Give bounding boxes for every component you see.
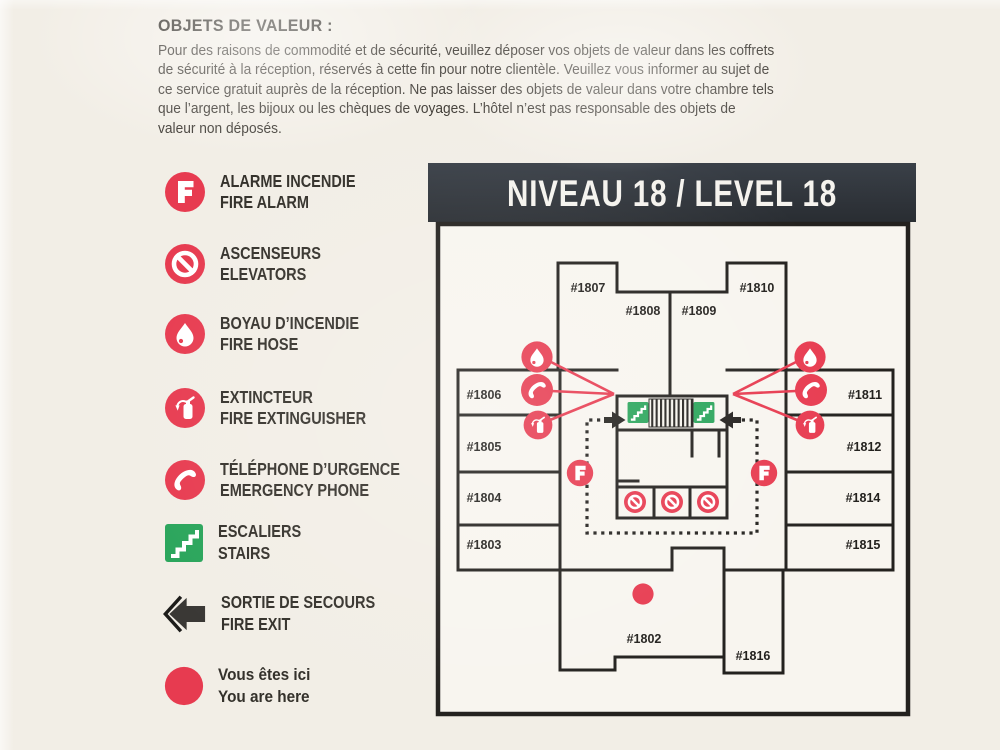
stairs-icon [694, 402, 715, 423]
legend-item-fire-alarm: ALARME INCENDIE FIRE ALARM [163, 170, 383, 214]
no-elevator-icon [661, 491, 683, 513]
legend-item-stairs: ESCALIERS STAIRS [163, 521, 318, 564]
map-title: NIVEAU 18 / LEVEL 18 [507, 173, 837, 214]
room-label-1805: #1805 [467, 440, 502, 454]
room-label-1807: #1807 [571, 281, 606, 295]
legend-label-en: EMERGENCY PHONE [220, 480, 400, 502]
you-are-here-icon [163, 665, 205, 707]
legend-label-fr: SORTIE DE SECOURS [221, 592, 375, 614]
legend-label-fr: BOYAU D’INCENDIE [220, 313, 359, 335]
legend-label-fr: Vous êtes ici [218, 664, 310, 686]
room-label-1808: #1808 [626, 304, 661, 318]
legend-label: Vous êtes ici You are here [218, 664, 321, 707]
emergency-phone-icon [521, 374, 553, 406]
room-label-1816: #1816 [736, 649, 771, 663]
legend-label: SORTIE DE SECOURS FIRE EXIT [221, 592, 407, 635]
room-label-1804: #1804 [467, 491, 502, 505]
plan-border [438, 224, 908, 714]
notice-line: que l’argent, les bijoux ou les chèques … [158, 99, 774, 118]
no-elevator-icon [624, 491, 646, 513]
you-are-here-dot [632, 583, 653, 604]
fire-alarm-icon [163, 170, 207, 214]
fire-extinguisher-icon [524, 411, 553, 440]
room-label-1802: #1802 [627, 632, 662, 646]
notice-line: ce service gratuit auprès de la réceptio… [158, 80, 774, 99]
fire-exit-arrow-icon [163, 595, 208, 633]
legend-label-fr: ASCENSEURS [220, 243, 321, 265]
legend-label-en: FIRE EXTINGUISHER [220, 408, 366, 430]
legend-label-en: STAIRS [218, 543, 301, 565]
no-elevator-icon [697, 491, 719, 513]
legend-label: ALARME INCENDIE FIRE ALARM [220, 171, 383, 214]
legend-label: ASCENSEURS ELEVATORS [220, 243, 342, 286]
room-label-1815: #1815 [846, 538, 881, 552]
legend-label-en: FIRE HOSE [220, 334, 359, 356]
floor-plan: NIVEAU 18 / LEVEL 18 [424, 160, 920, 720]
fire-extinguisher-icon [163, 386, 207, 430]
legend-item-you-are-here: Vous êtes ici You are here [163, 664, 321, 707]
room-label-1812: #1812 [847, 440, 882, 454]
legend-label-en: FIRE ALARM [220, 192, 356, 214]
notice-line: valeur non déposés. [158, 119, 774, 138]
no-elevator-icon [163, 242, 207, 286]
legend-label-fr: TÉLÉPHONE D’URGENCE [220, 459, 400, 481]
legend-label-fr: ALARME INCENDIE [220, 171, 356, 193]
legend-item-emergency-phone: TÉLÉPHONE D’URGENCE EMERGENCY PHONE [163, 458, 437, 502]
legend-label-en: ELEVATORS [220, 264, 321, 286]
legend-label: TÉLÉPHONE D’URGENCE EMERGENCY PHONE [220, 459, 437, 502]
fire-hose-icon [163, 312, 207, 356]
fire-hose-icon [794, 341, 825, 372]
room-label-1803: #1803 [467, 538, 502, 552]
legend-label: EXTINCTEUR FIRE EXTINGUISHER [220, 387, 396, 430]
legend-item-fire-extinguisher: EXTINCTEUR FIRE EXTINGUISHER [163, 386, 396, 430]
legend-label-fr: EXTINCTEUR [220, 387, 366, 409]
fire-extinguisher-icon [796, 411, 825, 440]
fire-alarm-icon [751, 460, 777, 486]
legend-item-fire-exit: SORTIE DE SECOURS FIRE EXIT [163, 592, 407, 635]
legend-item-elevators: ASCENSEURS ELEVATORS [163, 242, 342, 286]
room-label-1809: #1809 [682, 304, 717, 318]
room-label-1806: #1806 [467, 388, 502, 402]
notice-line: Pour des raisons de commodité et de sécu… [158, 41, 774, 60]
legend-label-en: You are here [218, 686, 310, 708]
stairs-icon [628, 402, 649, 423]
legend-label-en: FIRE EXIT [221, 614, 375, 636]
legend-item-fire-hose: BOYAU D’INCENDIE FIRE HOSE [163, 312, 388, 356]
emergency-phone-icon [163, 458, 207, 502]
room-label-1810: #1810 [740, 281, 775, 295]
fire-alarm-icon [567, 460, 593, 486]
room-label-1814: #1814 [846, 491, 881, 505]
valuables-notice: OBJETS DE VALEUR : Pour des raisons de c… [158, 17, 839, 138]
emergency-phone-icon [795, 374, 827, 406]
notice-heading: OBJETS DE VALEUR : [158, 17, 819, 36]
stairs-icon [163, 522, 205, 564]
notice-line: de sécurité à la réception, réservés à c… [158, 60, 774, 79]
fire-hose-icon [521, 341, 552, 372]
room-label-1811: #1811 [848, 388, 882, 402]
legend-label: BOYAU D’INCENDIE FIRE HOSE [220, 313, 388, 356]
legend-label: ESCALIERS STAIRS [218, 521, 318, 564]
stairwell-hatch [649, 399, 693, 427]
legend-label-fr: ESCALIERS [218, 521, 301, 543]
